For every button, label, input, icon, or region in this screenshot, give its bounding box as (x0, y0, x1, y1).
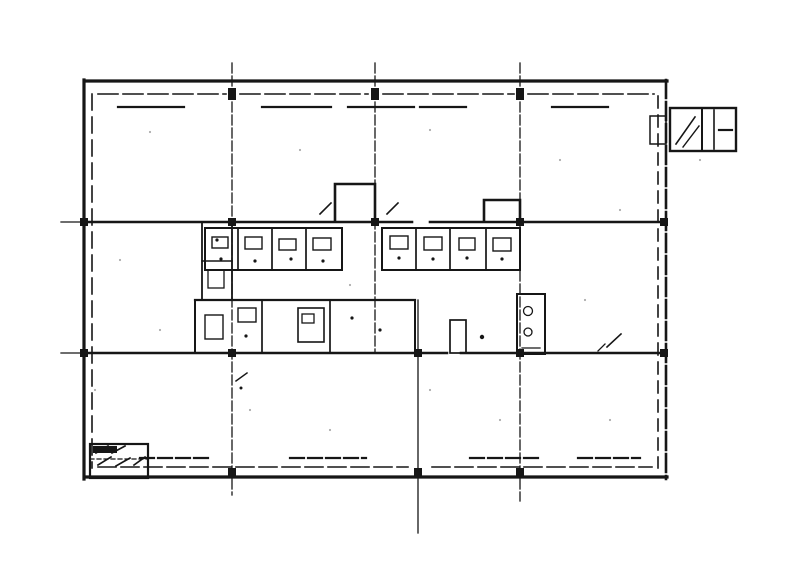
column-junction (660, 218, 668, 226)
speck (349, 284, 351, 286)
column-junction (516, 349, 524, 357)
fixture-dot (350, 316, 353, 319)
column-junction (80, 349, 88, 357)
column-junction (516, 468, 524, 477)
shaft-mark (524, 328, 532, 336)
speck (94, 389, 96, 391)
fixture-dot (253, 259, 256, 262)
fixture-dot (431, 257, 434, 260)
column-junction (80, 218, 88, 226)
fixture (245, 237, 262, 249)
fixture (313, 238, 331, 250)
fixture-dot (397, 256, 400, 259)
door-swing-mark (598, 344, 605, 351)
lower-core-closet (450, 320, 466, 353)
column-junction (660, 349, 668, 357)
speck (499, 419, 501, 421)
shaft (517, 294, 545, 354)
speck (559, 159, 561, 161)
column-junction (228, 88, 236, 100)
column-junction (371, 88, 379, 100)
column-junction (228, 218, 236, 226)
speck (429, 129, 431, 131)
lower-core-inner-room (298, 308, 324, 342)
fixture (238, 308, 256, 322)
fixture (390, 236, 408, 249)
column-junction (414, 468, 422, 477)
shaft-mark (524, 307, 533, 316)
fixture (493, 238, 511, 251)
fixture (208, 270, 224, 288)
column-junction (228, 468, 236, 477)
annex-stair-stroke (683, 126, 699, 147)
speck (149, 131, 151, 133)
plan-mark-dot (480, 335, 484, 339)
vestibule (484, 200, 520, 222)
fixture (205, 315, 223, 339)
fixture-dot (378, 328, 381, 331)
fixture-dot (219, 257, 222, 260)
speck (119, 259, 121, 261)
fixture-dot (465, 256, 468, 259)
stair-bulkhead (335, 184, 375, 222)
fixture-dot (500, 257, 503, 260)
fixture-dot (244, 334, 247, 337)
column-junction (371, 218, 379, 226)
speck (584, 299, 586, 301)
speck (329, 429, 331, 431)
speck (159, 329, 161, 331)
fixture-dot (321, 259, 324, 262)
floor-plan-drawing (0, 0, 787, 578)
speck (609, 419, 611, 421)
scanned-floor-plan-page (0, 0, 787, 578)
fixture (212, 237, 228, 248)
annex-stair-stroke (676, 117, 695, 144)
hatch-stroke (98, 457, 111, 465)
core-room-block-left (205, 228, 342, 270)
speck (249, 409, 251, 411)
door-swing-mark (607, 334, 621, 347)
fixture (279, 239, 296, 250)
door-swing-mark (387, 203, 398, 214)
fixture-dot (215, 238, 218, 241)
plan-mark-dot (240, 387, 243, 390)
column-junction (516, 88, 524, 100)
speck (299, 149, 301, 151)
column-junction (414, 349, 422, 357)
fixture (302, 314, 314, 323)
fixture-dot (289, 257, 292, 260)
speck (699, 159, 701, 161)
column-junction (516, 218, 524, 226)
speck (429, 389, 431, 391)
fixture (459, 238, 475, 250)
door-swing-mark (236, 373, 247, 381)
speck (619, 209, 621, 211)
column-junction (228, 349, 236, 357)
door-swing-mark (320, 203, 331, 214)
fixture (424, 237, 442, 250)
